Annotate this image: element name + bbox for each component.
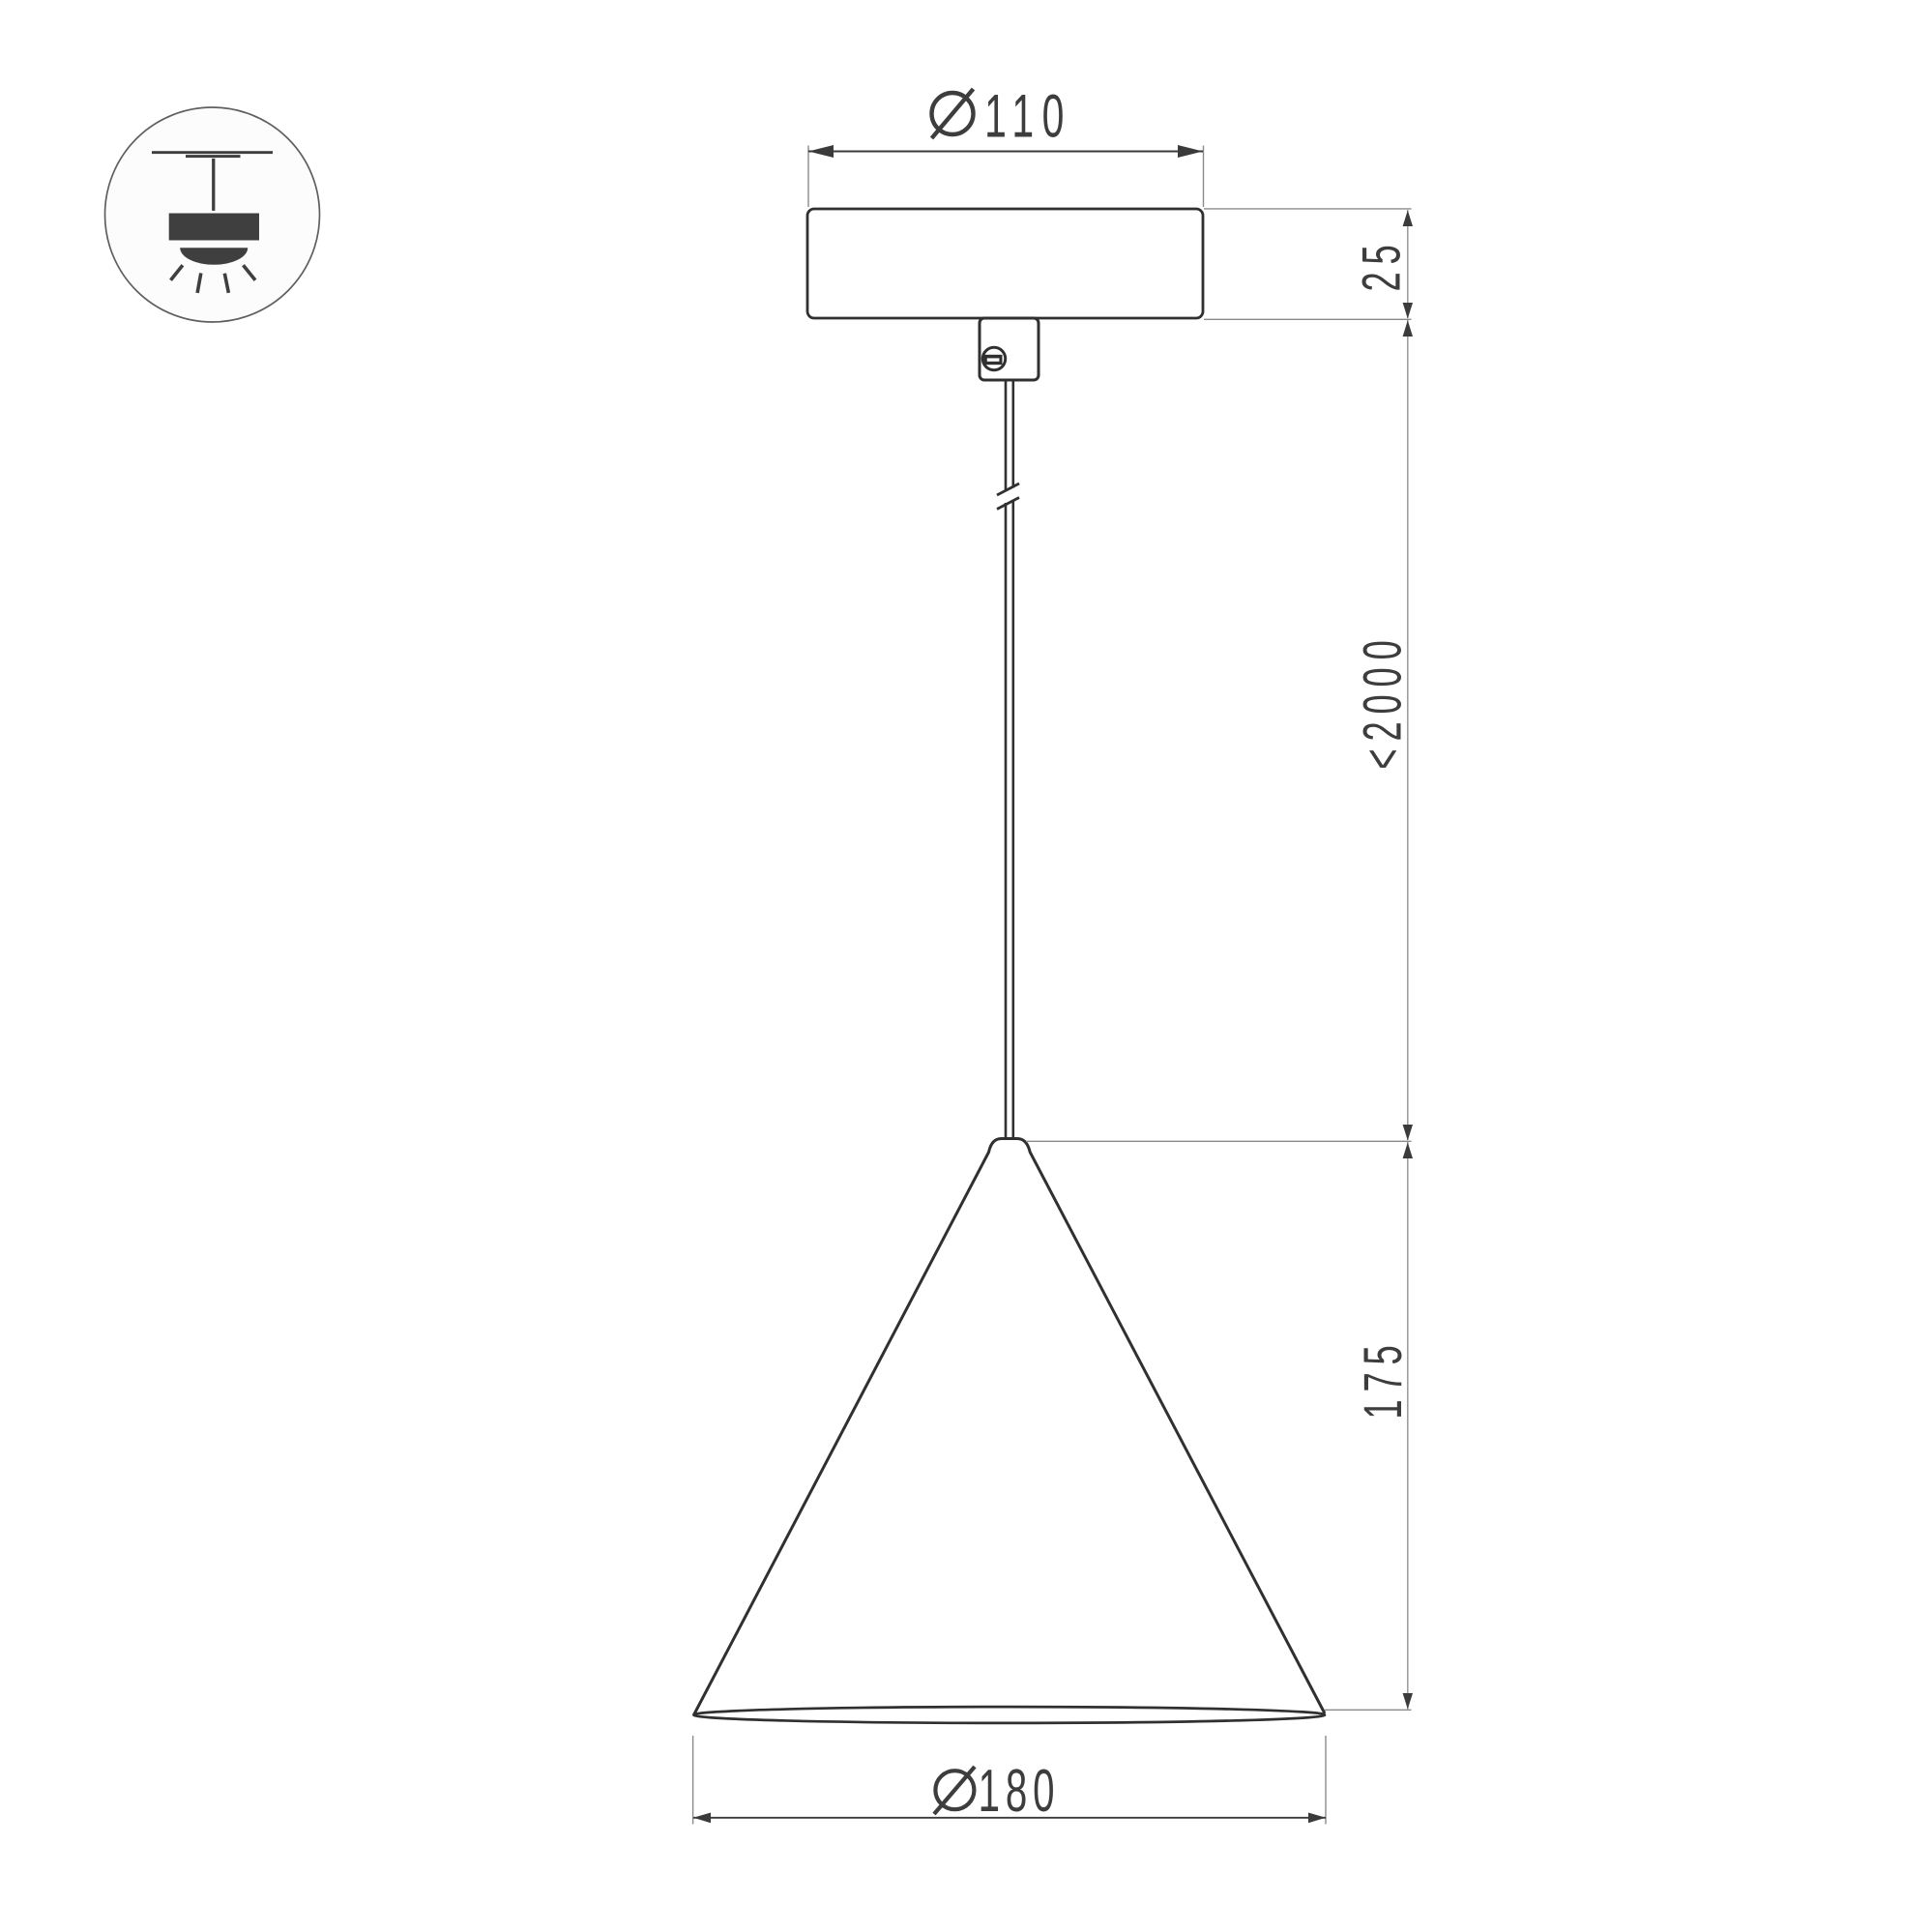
svg-text:25: 25 xyxy=(1352,237,1413,291)
svg-text:180: 180 xyxy=(979,1758,1061,1825)
svg-text:<2000: <2000 xyxy=(1353,632,1414,769)
svg-text:175: 175 xyxy=(1353,1337,1414,1419)
svg-text:110: 110 xyxy=(984,83,1072,151)
